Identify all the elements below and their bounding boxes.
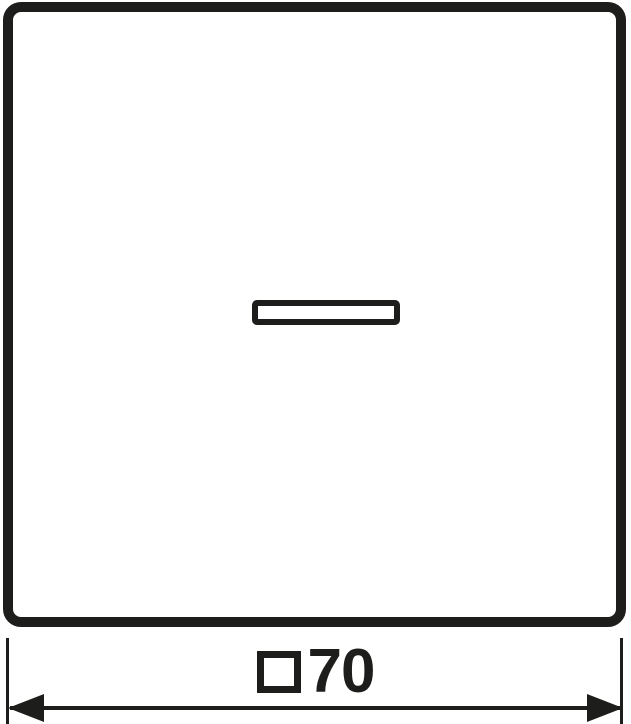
dimension-line <box>10 706 621 710</box>
dimension-value: 70 <box>308 641 375 703</box>
arrow-left-icon <box>8 694 44 722</box>
square-symbol-icon <box>257 651 301 693</box>
switch-plate-outline <box>3 2 626 627</box>
dimension-drawing: 70 <box>0 0 631 724</box>
dimension-label: 70 <box>0 641 631 703</box>
indicator-window <box>252 300 400 325</box>
arrow-right-icon <box>587 694 623 722</box>
